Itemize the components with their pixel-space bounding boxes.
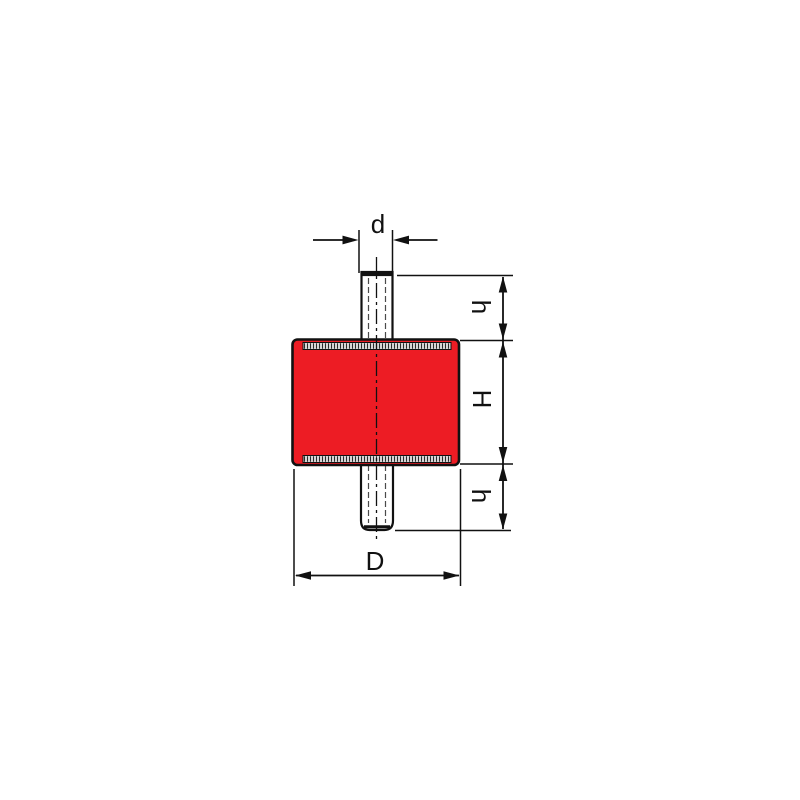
dim-D-label: D <box>366 546 385 576</box>
dim-D-arrow-left-icon <box>295 571 311 580</box>
dim-h-top-arrow-up-icon <box>499 277 508 293</box>
dim-H-arrow-down-icon <box>499 447 508 463</box>
technical-drawing: d h H h <box>0 0 800 800</box>
dim-d-arrow-right-icon <box>393 236 409 245</box>
dim-d-arrow-left-icon <box>343 236 359 245</box>
top-stud-chamfer-band <box>361 272 393 277</box>
top-stud-outline <box>362 272 393 342</box>
dim-D-arrow-right-icon <box>444 571 460 580</box>
dim-d-label: d <box>371 209 385 239</box>
mount-body <box>293 340 460 466</box>
top-stud <box>361 272 393 343</box>
dim-h-top-arrow-down-icon <box>499 324 508 340</box>
dim-H-arrow-up-icon <box>499 342 508 358</box>
drawing-canvas: d h H h <box>0 0 800 800</box>
dim-h-bottom-arrow-up-icon <box>499 465 508 481</box>
dim-H-label: H <box>467 390 497 409</box>
dim-h-bottom-arrow-down-icon <box>499 514 508 530</box>
dimension-d: d <box>313 209 438 273</box>
dim-h-top-label: h <box>466 300 496 314</box>
dim-h-bottom-label: h <box>466 489 496 503</box>
